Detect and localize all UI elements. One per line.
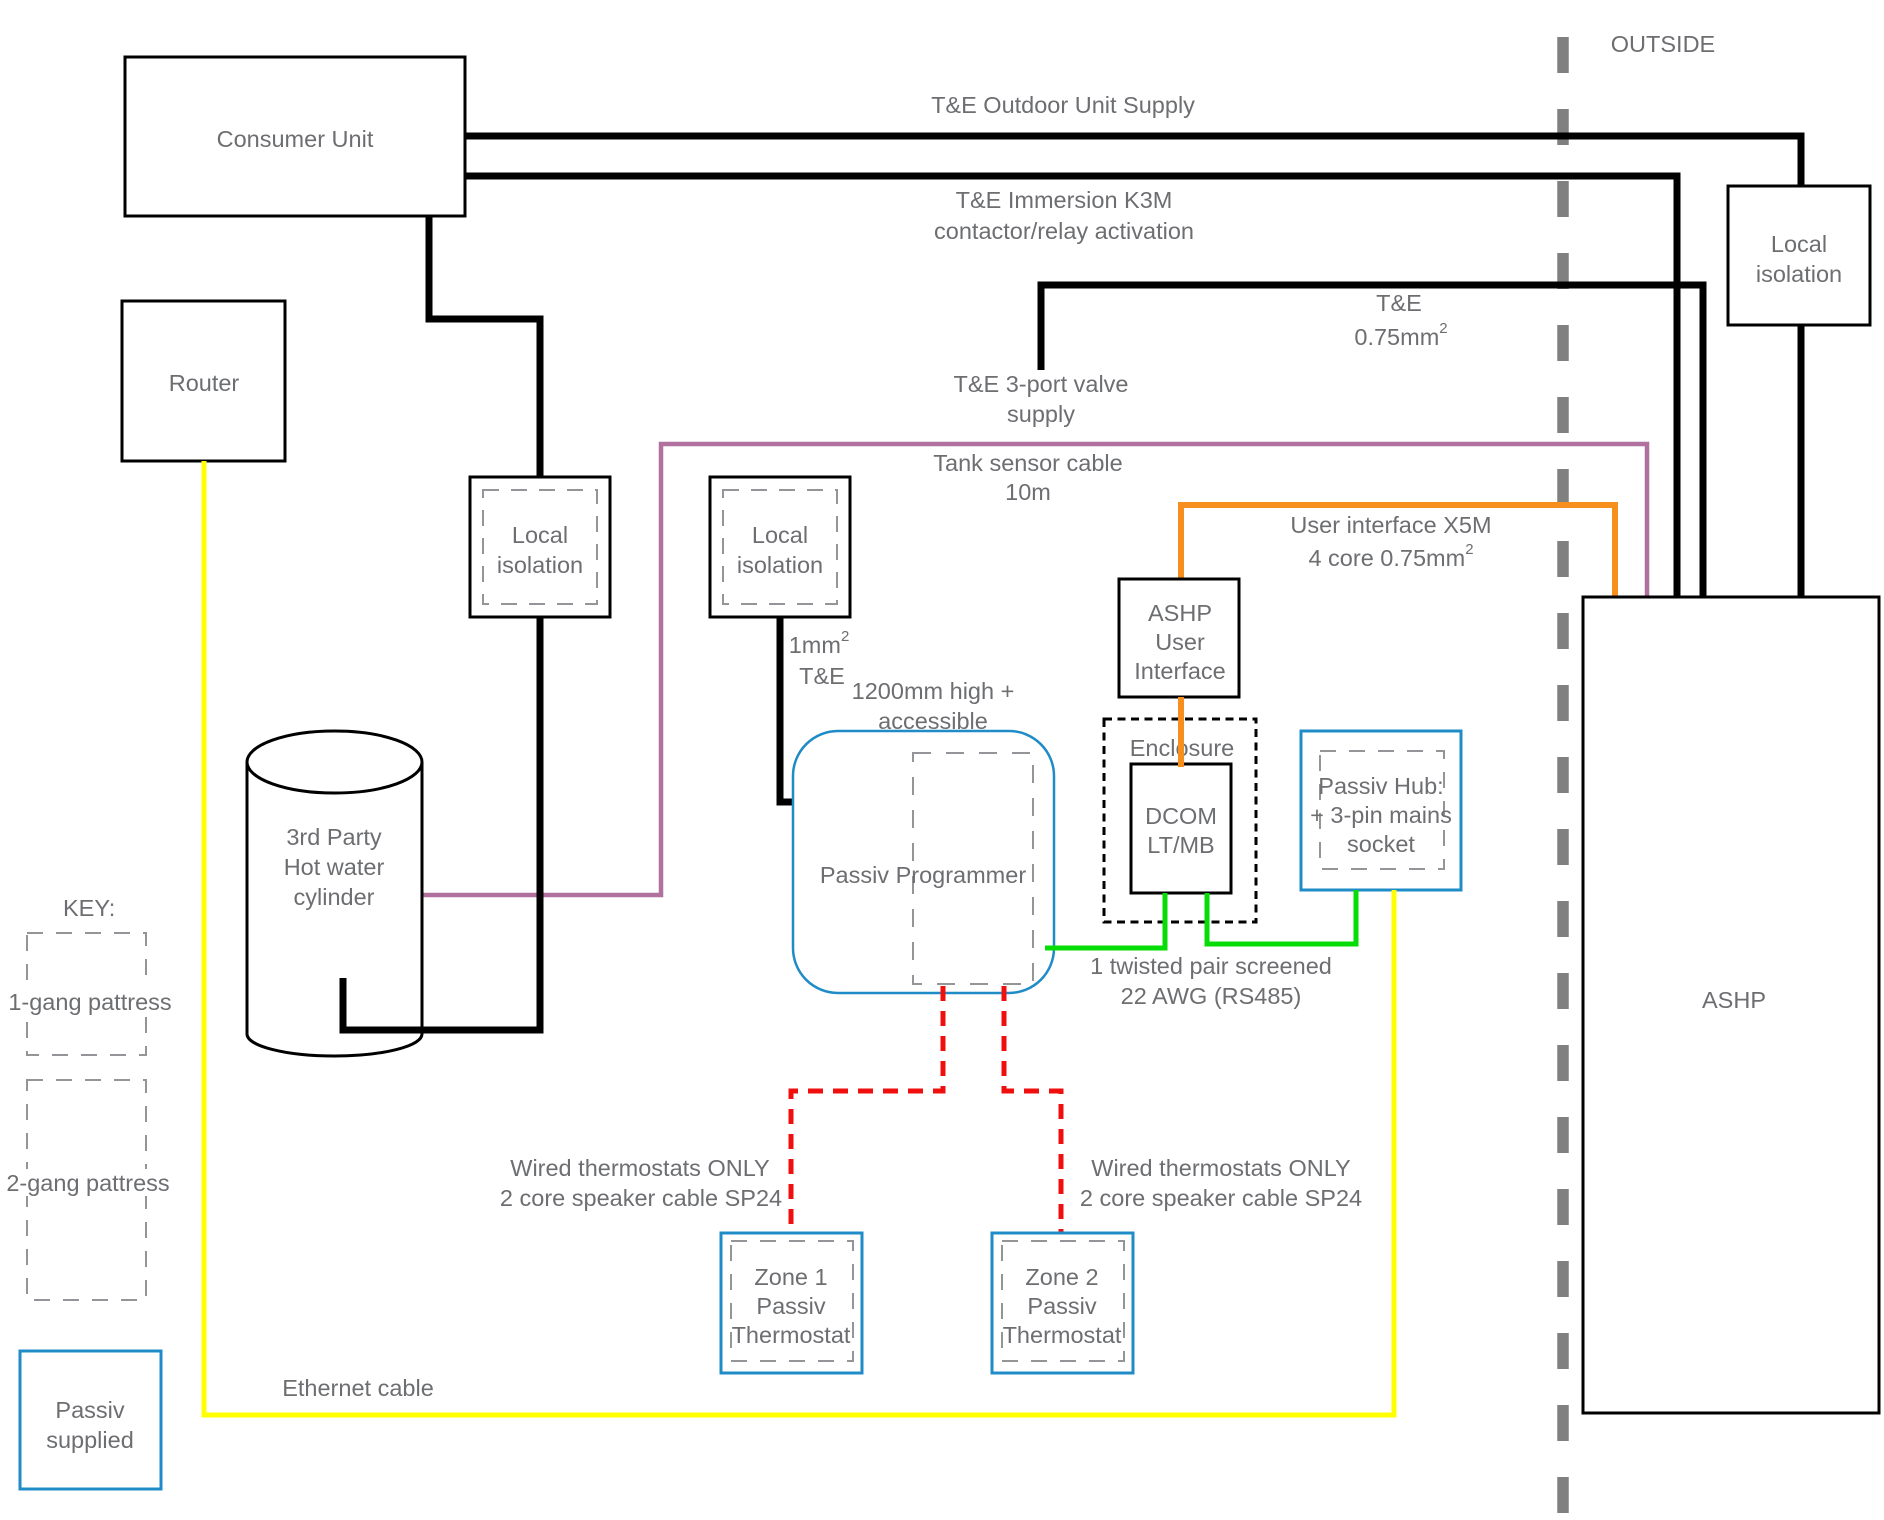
svg-text:T&E Outdoor Unit Supply: T&E Outdoor Unit Supply: [931, 92, 1195, 118]
svg-text:ASHP: ASHP: [1702, 987, 1766, 1013]
svg-text:Local: Local: [752, 522, 808, 548]
svg-text:Ethernet cable: Ethernet cable: [282, 1375, 434, 1401]
svg-text:Tank sensor cable: Tank sensor cable: [933, 450, 1122, 476]
svg-text:Interface: Interface: [1134, 658, 1225, 684]
svg-text:T&E 3-port valve: T&E 3-port valve: [953, 371, 1128, 397]
svg-text:LT/MB: LT/MB: [1147, 832, 1214, 858]
svg-text:Passiv: Passiv: [55, 1397, 124, 1423]
svg-text:Hot water: Hot water: [284, 854, 385, 880]
svg-text:22 AWG (RS485): 22 AWG (RS485): [1121, 983, 1302, 1009]
svg-text:1-gang pattress: 1-gang pattress: [8, 989, 171, 1015]
svg-text:isolation: isolation: [1756, 261, 1842, 287]
svg-text:Local: Local: [1771, 231, 1827, 257]
svg-text:Passiv: Passiv: [1027, 1293, 1096, 1319]
svg-text:Zone 1: Zone 1: [754, 1264, 827, 1290]
svg-text:Passiv: Passiv: [756, 1293, 825, 1319]
svg-text:User: User: [1155, 629, 1205, 655]
svg-text:Zone 2: Zone 2: [1025, 1264, 1098, 1290]
svg-text:ASHP: ASHP: [1148, 600, 1212, 626]
svg-text:2 core speaker cable SP24: 2 core speaker cable SP24: [500, 1185, 782, 1211]
svg-text:1 twisted pair screened: 1 twisted pair screened: [1090, 953, 1332, 979]
svg-text:Passiv Hub:: Passiv Hub:: [1318, 773, 1443, 799]
svg-text:10m: 10m: [1005, 479, 1051, 505]
svg-text:Local: Local: [512, 522, 568, 548]
svg-text:socket: socket: [1347, 831, 1415, 857]
svg-text:DCOM: DCOM: [1145, 803, 1217, 829]
svg-text:cylinder: cylinder: [294, 884, 375, 910]
svg-text:OUTSIDE: OUTSIDE: [1611, 31, 1715, 57]
svg-text:isolation: isolation: [737, 552, 823, 578]
svg-text:Consumer Unit: Consumer Unit: [217, 126, 374, 152]
svg-text:T&E Immersion K3M: T&E Immersion K3M: [956, 187, 1173, 213]
svg-text:Wired thermostats ONLY: Wired thermostats ONLY: [1091, 1155, 1351, 1181]
svg-text:contactor/relay activation: contactor/relay activation: [934, 218, 1194, 244]
svg-text:3rd Party: 3rd Party: [286, 824, 382, 850]
svg-text:supply: supply: [1007, 401, 1075, 427]
svg-text:Passiv Programmer: Passiv Programmer: [820, 862, 1026, 888]
svg-text:+ 3-pin mains: + 3-pin mains: [1310, 802, 1452, 828]
svg-text:T&E: T&E: [799, 663, 845, 689]
svg-text:1mm2: 1mm2: [789, 628, 850, 659]
svg-text:isolation: isolation: [497, 552, 583, 578]
svg-text:1200mm high +: 1200mm high +: [852, 678, 1015, 704]
svg-text:2 core speaker cable SP24: 2 core speaker cable SP24: [1080, 1185, 1362, 1211]
svg-text:T&E: T&E: [1376, 290, 1422, 316]
svg-text:Thermostat: Thermostat: [732, 1322, 851, 1348]
svg-text:supplied: supplied: [46, 1427, 134, 1453]
svg-text:Thermostat: Thermostat: [1003, 1322, 1122, 1348]
svg-text:0.75mm2: 0.75mm2: [1354, 320, 1447, 351]
svg-text:4 core 0.75mm2: 4 core 0.75mm2: [1308, 541, 1473, 572]
svg-text:2-gang pattress: 2-gang pattress: [6, 1170, 169, 1196]
svg-text:Wired thermostats ONLY: Wired thermostats ONLY: [510, 1155, 770, 1181]
svg-text:KEY:: KEY:: [63, 895, 115, 921]
svg-text:User interface X5M: User interface X5M: [1290, 512, 1491, 538]
svg-text:Router: Router: [169, 370, 240, 396]
